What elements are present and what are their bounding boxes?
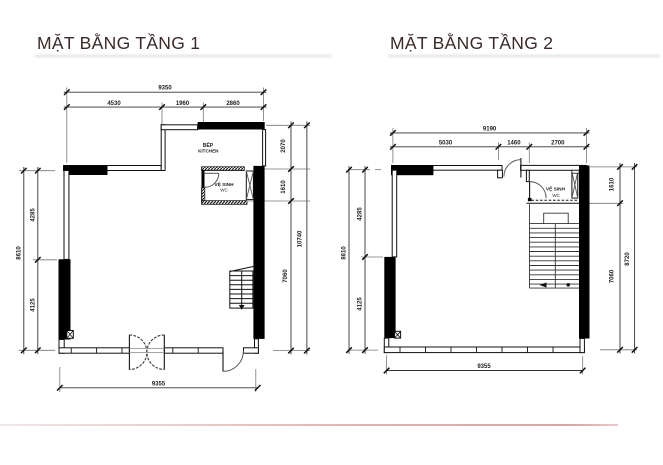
svg-text:1610: 1610 bbox=[610, 177, 616, 191]
svg-text:8610: 8610 bbox=[342, 246, 348, 260]
svg-text:4285: 4285 bbox=[358, 207, 364, 221]
svg-text:2700: 2700 bbox=[551, 141, 565, 147]
svg-text:7060: 7060 bbox=[283, 269, 289, 283]
svg-text:4530: 4530 bbox=[107, 101, 121, 107]
svg-text:8720: 8720 bbox=[625, 252, 631, 266]
svg-text:WC: WC bbox=[552, 193, 559, 198]
svg-text:9190: 9190 bbox=[483, 126, 497, 132]
svg-text:4125: 4125 bbox=[31, 298, 37, 312]
svg-text:4125: 4125 bbox=[358, 297, 364, 311]
svg-text:9350: 9350 bbox=[158, 86, 172, 92]
svg-text:8610: 8610 bbox=[17, 246, 23, 260]
svg-text:2860: 2860 bbox=[226, 101, 240, 107]
svg-text:VỆ SINH: VỆ SINH bbox=[546, 184, 566, 192]
svg-text:1610: 1610 bbox=[281, 180, 287, 194]
svg-text:4285: 4285 bbox=[31, 208, 37, 222]
svg-text:10740: 10740 bbox=[298, 230, 304, 247]
svg-text:2070: 2070 bbox=[281, 139, 287, 153]
svg-text:9355: 9355 bbox=[477, 364, 491, 370]
svg-text:5030: 5030 bbox=[439, 141, 453, 147]
svg-text:1960: 1960 bbox=[176, 101, 190, 107]
svg-text:7060: 7060 bbox=[610, 269, 616, 283]
svg-text:KITCHEN: KITCHEN bbox=[198, 148, 219, 153]
svg-text:9355: 9355 bbox=[152, 381, 166, 387]
svg-text:WC: WC bbox=[220, 188, 227, 193]
svg-text:1460: 1460 bbox=[507, 141, 521, 147]
